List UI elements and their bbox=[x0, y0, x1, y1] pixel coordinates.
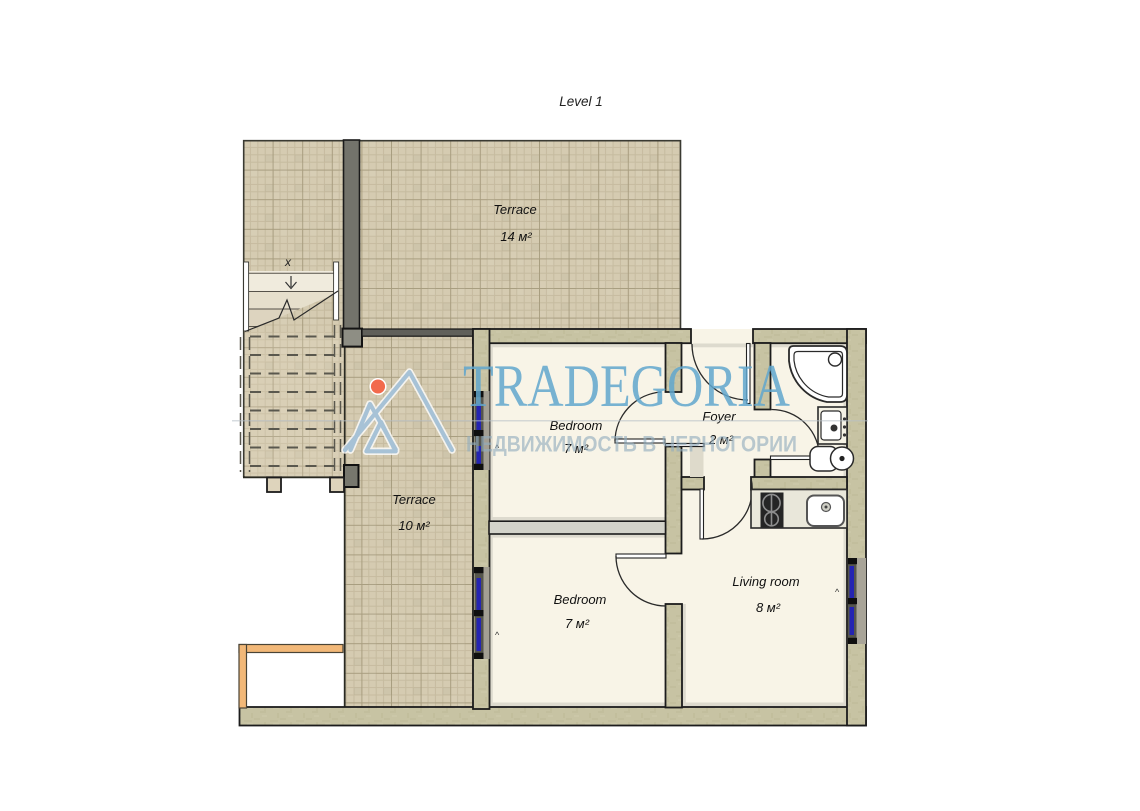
svg-text:Terrace: Terrace bbox=[392, 492, 436, 507]
svg-text:Living room: Living room bbox=[732, 574, 799, 589]
svg-text:НЕДВИЖИМОСТЬ В ЧЕРНОГОРИИ: НЕДВИЖИМОСТЬ В ЧЕРНОГОРИИ bbox=[466, 432, 797, 457]
svg-text:Level 1: Level 1 bbox=[559, 94, 603, 109]
svg-text:7 м²: 7 м² bbox=[565, 616, 590, 631]
svg-text:8 м²: 8 м² bbox=[756, 600, 781, 615]
svg-text:10 м²: 10 м² bbox=[398, 518, 430, 533]
svg-text:Terrace: Terrace bbox=[493, 202, 537, 217]
svg-text:14 м²: 14 м² bbox=[500, 229, 532, 244]
svg-text:Bedroom: Bedroom bbox=[554, 592, 607, 607]
svg-text:TRADEGORIA: TRADEGORIA bbox=[463, 353, 790, 419]
svg-text:x: x bbox=[284, 255, 292, 269]
